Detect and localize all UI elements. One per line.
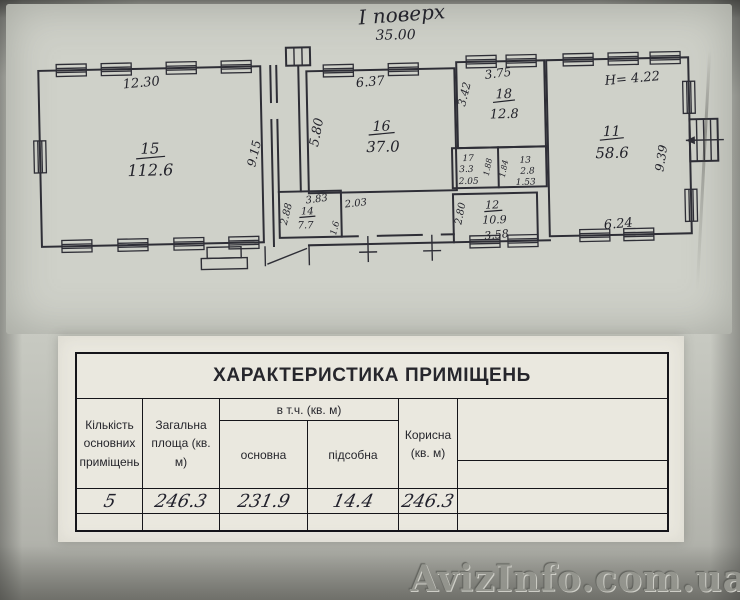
room-18-area: 12.8 [490,107,519,123]
room-13-dim-bottom: 1.53 [516,178,537,188]
room-18-dim-side: 3.42 [455,81,473,108]
col-header-blank [458,399,667,489]
room-16-dim-top: 6.37 [355,74,386,92]
room-17-number: 17 [462,154,474,164]
room-14-dim-left: 2.88 [279,202,295,227]
empty-cell [143,514,220,530]
room-11-height-note: Н= 4.22 [603,69,660,89]
room-11-dim-side: 9.39 [652,144,670,173]
blank-column-divider [457,460,667,461]
exterior-walls [38,39,692,271]
room-11-area: 58.6 [595,144,629,163]
room-15-number: 15 [140,139,159,157]
room-15-area: 112.6 [127,160,173,180]
empty-cell [220,514,308,530]
room-11-number: 11 [603,124,621,140]
room-14-dim-top: 3.83 [305,193,328,207]
empty-cell [458,514,667,530]
room-18-dim-top: 3.75 [484,65,512,82]
plan-overall-width: 35.00 [375,27,415,44]
room-17-dim-bottom: 2.05 [458,177,480,187]
room-12-area: 10.9 [482,213,507,227]
room-13-dim-side: 1.84 [498,159,510,178]
room-12-number: 12 [485,198,499,211]
col-header-including: в т.ч. (кв. м) [220,399,399,421]
value-auxiliary-area: 14.4 [308,489,399,514]
room-17-dim-side: 1.88 [482,157,494,176]
room-13-number: 13 [519,156,531,166]
scanned-document-photo: І поверх 35.00 15 112.6 12.30 9.15 16 37… [0,0,740,600]
room-14-dim-right: 2.03 [343,197,367,210]
room-16-area: 37.0 [366,137,400,156]
room-16-number: 16 [372,119,390,135]
empty-cell [399,514,458,530]
table-title: ХАРАКТЕРИСТИКА ПРИМІЩЕНЬ [77,354,667,399]
room-14-dim-bottom: 1.6 [329,220,342,237]
room-13-area: 2.8 [519,167,535,177]
value-main-area: 231.9 [220,489,308,514]
room-12-dim-left: 2.80 [453,201,468,227]
value-blank [458,489,667,514]
plan-floor-title: І поверх [357,0,446,30]
room-11-dim-bottom: 6.24 [603,216,633,234]
floor-plan: І поверх 35.00 15 112.6 12.30 9.15 16 37… [0,0,740,336]
room-14-area: 7.7 [298,220,315,231]
value-useful-area: 246.3 [399,489,458,514]
col-header-total-area: Загальна площа (кв. м) [143,399,220,489]
entrance-steps [201,247,247,270]
room-17-area: 3.3 [459,165,474,175]
room-15-dim-top: 12.30 [122,74,160,92]
value-count: 5 [77,489,143,514]
room-16-dim-side: 5.80 [307,117,327,148]
room-12-dim-bottom: 3.58 [484,227,510,243]
room-14-number: 14 [301,206,314,217]
empty-cell [308,514,399,530]
col-header-main: основна [220,421,308,489]
watermark: AvizInfo.com.ua [410,558,740,600]
col-header-count: Кількість основних приміщень [77,399,143,489]
col-header-useful: Корисна (кв. м) [399,399,458,489]
value-total-area: 246.3 [143,489,220,514]
col-header-auxiliary: підсобна [308,421,399,489]
premises-characteristics-table: ХАРАКТЕРИСТИКА ПРИМІЩЕНЬ Кількість основ… [75,352,669,532]
empty-cell [77,514,143,530]
room-15-dim-side: 9.15 [244,139,264,168]
